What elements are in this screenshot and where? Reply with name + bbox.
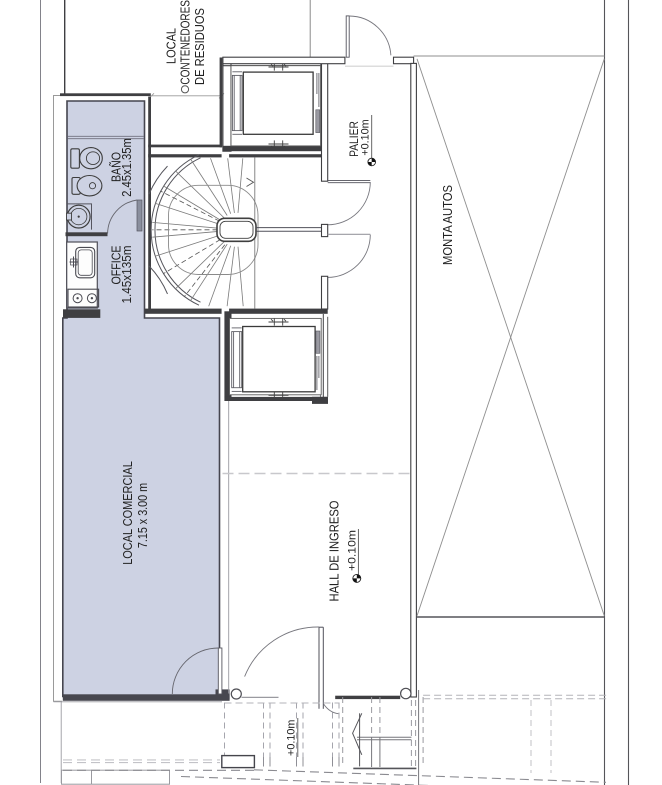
svg-text:CONTENEDORES: CONTENEDORES [178,0,193,85]
svg-text:HALL DE INGRESO: HALL DE INGRESO [327,501,342,602]
svg-text:MONTA AUTOS: MONTA AUTOS [440,185,455,265]
svg-text:LOCAL COMERCIAL: LOCAL COMERCIAL [120,461,135,565]
svg-text:+0.10m: +0.10m [360,119,372,155]
svg-text:2.45x1.35m: 2.45x1.35m [119,138,134,197]
svg-text:DE RESIDUOS: DE RESIDUOS [192,8,207,85]
svg-text:+0.10m: +0.10m [347,530,359,571]
svg-text:LOCAL: LOCAL [164,28,179,64]
svg-text:1.45x135m: 1.45x135m [119,246,134,304]
svg-text:7.15 x 3.00 m: 7.15 x 3.00 m [135,483,150,548]
svg-text:+0.10m: +0.10m [286,720,298,756]
